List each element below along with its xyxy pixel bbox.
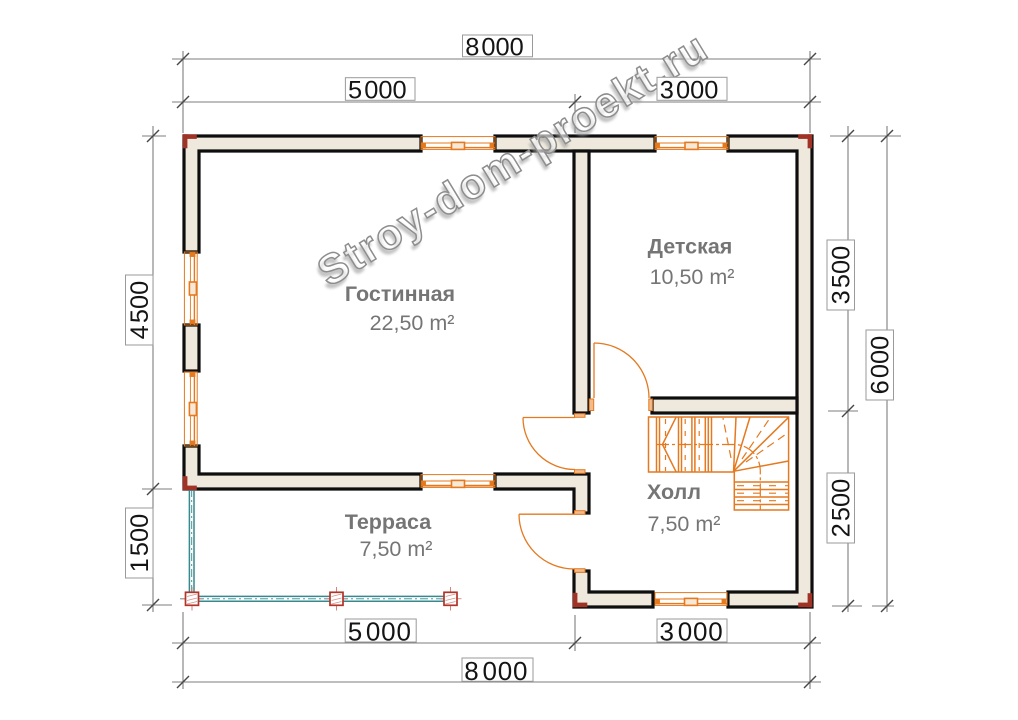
svg-text:3 000: 3 000 xyxy=(660,77,719,105)
svg-text:4 500: 4 500 xyxy=(126,281,154,340)
svg-text:7,50 m²: 7,50 m² xyxy=(360,537,433,561)
svg-text:Холл: Холл xyxy=(647,480,701,504)
svg-text:6 000: 6 000 xyxy=(867,336,895,395)
svg-text:2 500: 2 500 xyxy=(828,479,856,538)
svg-text:10,50 m²: 10,50 m² xyxy=(650,265,735,289)
svg-text:3 500: 3 500 xyxy=(828,246,856,305)
svg-text:Терраса: Терраса xyxy=(345,510,432,534)
svg-text:5 000: 5 000 xyxy=(348,77,407,105)
svg-text:1 500: 1 500 xyxy=(126,514,154,573)
svg-text:Детская: Детская xyxy=(648,235,733,259)
svg-text:7,50 m²: 7,50 m² xyxy=(648,512,721,536)
svg-text:Гостинная: Гостинная xyxy=(345,282,455,306)
svg-text:22,50 m²: 22,50 m² xyxy=(370,311,455,335)
svg-text:5 000: 5 000 xyxy=(348,617,412,647)
svg-text:8 000: 8 000 xyxy=(464,656,528,686)
svg-text:3 000: 3 000 xyxy=(660,617,724,647)
svg-text:8 000: 8 000 xyxy=(465,33,524,61)
